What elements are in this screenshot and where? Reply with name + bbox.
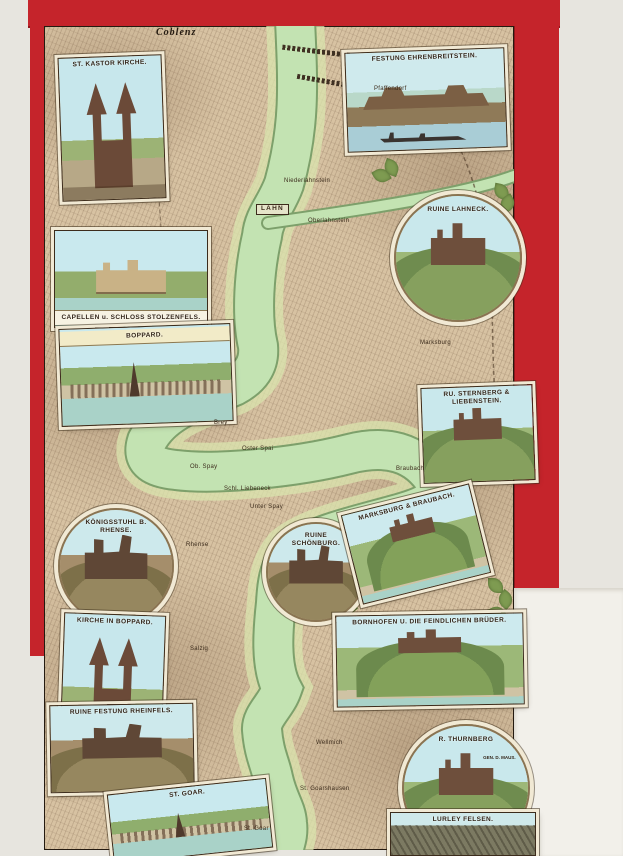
vignette-label: CAPELLEN u. SCHLOSS STOLZENFELS. xyxy=(55,310,207,325)
map-label-schl-liebeneck: Schl. Liebeneck xyxy=(224,486,271,492)
vignette-ruine-festung-rheinfels: RUINE FESTUNG RHEINFELS. xyxy=(49,703,195,793)
map-label-st-goarshausen: St. Goarshausen xyxy=(300,786,350,792)
vignette-sublabel: GEN. D. MAUS. xyxy=(483,756,516,761)
vignette-label: RUINE SCHÖNBURG. xyxy=(278,531,355,549)
vignette-ruine-lahneck: RUINE LAHNECK. xyxy=(394,194,522,322)
vignette-festung-ehrenbreitstein: FESTUNG EHRENBREITSTEIN. xyxy=(344,47,507,153)
map-label-oberlahnstein: Oberlahnstein xyxy=(308,218,349,224)
vignette-capellen-schloss-stolzenfels: CAPELLEN u. SCHLOSS STOLZENFELS. xyxy=(54,230,208,328)
map-label-brey: Brey xyxy=(214,420,228,426)
vignette-sternberg-liebenstein: RU. STERNBERG & LIEBENSTEIN. xyxy=(420,384,535,484)
map-label-unter-spay: Unter Spay xyxy=(250,504,283,510)
map-label-marksburg: Marksburg xyxy=(420,340,451,346)
map-label-salzig: Salzig xyxy=(190,646,208,652)
map-label-lahn: LAHN xyxy=(256,204,289,215)
map-label-st-goar: St. Goar xyxy=(244,826,269,832)
book-cover-top-edge xyxy=(28,0,560,28)
map-label-oster-spai: Oster Spai xyxy=(242,446,273,452)
vignette-koenigsstuhl-rhense: KÖNIGSSTUHL B. RHENSE. xyxy=(58,508,174,624)
vignette-label: R. THURNBERG xyxy=(416,735,515,745)
map-label-braubach: Braubach xyxy=(396,466,424,472)
rhine-panorama-map-scan: CoblenzPfaffendorfNiederlahnsteinLAHNObe… xyxy=(0,0,623,856)
church-illustration xyxy=(59,55,166,200)
vignette-bornhofen-feindliche-brueder: BORNHOFEN U. DIE FEINDLICHEN BRÜDER. xyxy=(335,612,525,707)
map-label-pfaffendorf: Pfaffendorf xyxy=(374,86,407,92)
map-label-rhense: Rhense xyxy=(186,542,208,548)
castle-hill-illustration xyxy=(396,196,520,320)
vignette-label: LURLEY FELSEN. xyxy=(391,815,535,825)
map-label-coblenz: Coblenz xyxy=(156,28,196,38)
vignette-label: RUINE LAHNECK. xyxy=(408,205,507,215)
map-label-wellmich: Wellmich xyxy=(316,740,343,746)
vignette-boppard-panorama: BOPPARD. xyxy=(58,323,233,427)
map-label-niederlahnstein: Niederlahnstein xyxy=(284,178,330,184)
map-label-ob-spay: Ob. Spay xyxy=(190,464,217,470)
vignette-lurley-felsen: LURLEY FELSEN. xyxy=(390,812,536,856)
vignette-st-kastor-kirche: ST. KASTOR KIRCHE. xyxy=(58,54,167,202)
vignette-label: KÖNIGSSTUHL B. RHENSE. xyxy=(71,518,161,536)
book-cover-right-edge xyxy=(514,26,559,588)
